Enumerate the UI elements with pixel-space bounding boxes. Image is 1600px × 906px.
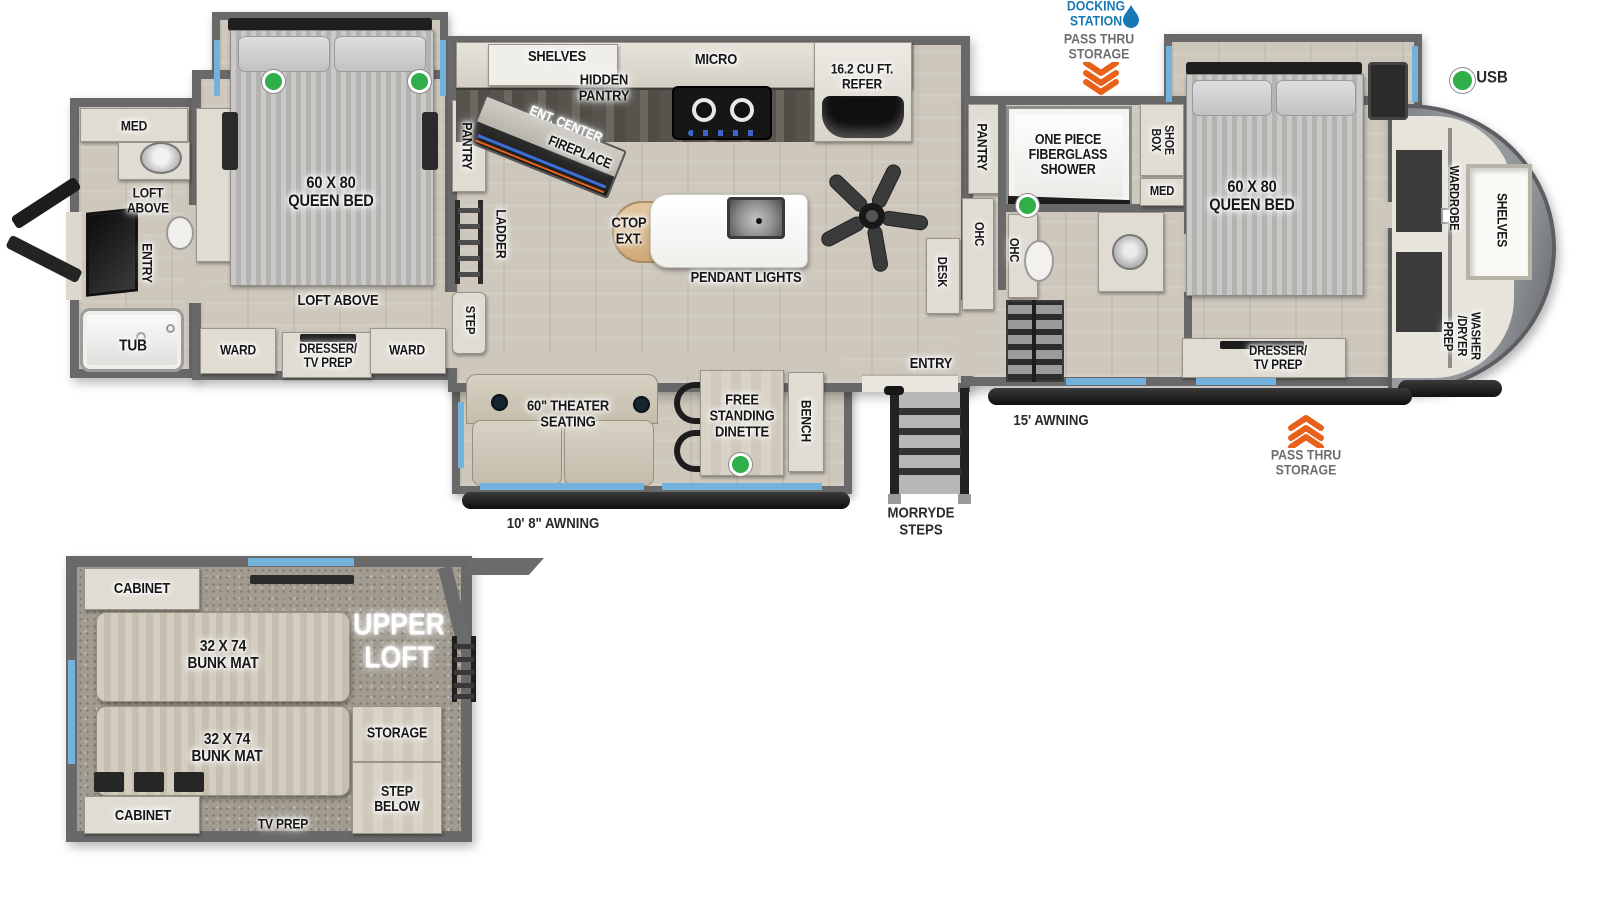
- bedroom2-bed-label: 60 X 80 QUEEN BED: [288, 174, 373, 210]
- stairs-divider: [1032, 300, 1036, 382]
- morryde-steps-label: MORRYDE STEPS: [888, 506, 955, 539]
- kitchen-shelves-label: SHELVES: [528, 49, 586, 65]
- bedroom1-bed-label: 60 X 80 QUEEN BED: [1209, 178, 1294, 214]
- bedroom2-ward-right-label: WARD: [389, 343, 425, 358]
- burner: [730, 98, 754, 122]
- upper-loft-title: UPPER LOFT: [353, 608, 445, 673]
- galley-ladder: [452, 198, 486, 286]
- bedroom1-window-frame: [1368, 62, 1408, 120]
- usb-indicator: [1016, 194, 1039, 217]
- stove-knobs: [688, 130, 760, 136]
- bedroom1-pillow: [1276, 80, 1356, 116]
- desk-label: DESK: [935, 257, 949, 287]
- island-sink: [727, 197, 785, 239]
- living-window: [480, 483, 644, 490]
- awning-small-label: 10' 8" AWNING: [507, 516, 600, 533]
- bedroom2-pillow: [334, 36, 426, 72]
- slideout-opening-living: [464, 352, 842, 374]
- loft-tv-mount: [250, 575, 354, 584]
- cup-holder: [633, 396, 650, 413]
- tub-drain: [166, 324, 175, 333]
- dinette-label: FREE STANDING DINETTE: [709, 392, 774, 439]
- morryde-steps: [884, 386, 974, 506]
- bedroom2-dresser-label: DRESSER/ TV PREP: [299, 342, 357, 370]
- usb-indicator: [408, 70, 431, 93]
- bedroom2-nightstand-window: [222, 112, 238, 170]
- burner: [692, 98, 716, 122]
- wardrobe-opening: [1396, 150, 1442, 232]
- wardrobe-opening: [1396, 252, 1442, 332]
- living-window: [662, 483, 822, 490]
- mid-pantry-label: PANTRY: [975, 123, 990, 170]
- shower-label: ONE PIECE FIBERGLASS SHOWER: [1029, 133, 1108, 179]
- bedroom2-window: [440, 40, 446, 96]
- mid-ohc-cabinet: [962, 198, 994, 310]
- pass-thru-down-arrow-icon: [1081, 62, 1121, 96]
- loft-storage-label: STORAGE: [367, 726, 427, 741]
- living-window: [458, 402, 464, 468]
- bedroom1-window: [1066, 378, 1146, 385]
- loft-cabinet-top-label: CABINET: [114, 581, 170, 597]
- bedroom1-window: [1166, 46, 1172, 102]
- loft-vent-slot: [134, 772, 164, 792]
- toilet: [1024, 240, 1054, 282]
- usb-indicator-legend: [1450, 68, 1475, 93]
- bedroom1-window: [1196, 378, 1276, 385]
- awning-large-label: 15' AWNING: [1013, 413, 1088, 430]
- bath-sink: [1112, 234, 1148, 270]
- usb-label: USB: [1476, 69, 1508, 88]
- awning-roller-small: [462, 492, 850, 509]
- loft-ladder-icon: [450, 636, 478, 702]
- galley-step-label: STEP: [463, 306, 477, 335]
- bedroom2-ward-left-label: WARD: [220, 343, 256, 358]
- loft-step-below-label: STEP BELOW: [374, 785, 420, 815]
- ohc-right-label: OHC: [1007, 238, 1021, 262]
- usb-indicator: [729, 453, 752, 476]
- tub-label: TUB: [119, 339, 147, 356]
- pass-thru-top-label: PASS THRU STORAGE: [1064, 32, 1134, 63]
- loft-window: [248, 558, 354, 566]
- refrigerator: [822, 96, 904, 138]
- entry-label: ENTRY: [910, 356, 952, 372]
- bedroom2-nightstand-window: [422, 112, 438, 170]
- loft-window: [68, 660, 75, 764]
- bedroom2-loft-above-label: LOFT ABOVE: [298, 293, 379, 309]
- stove: [672, 86, 772, 140]
- bedroom2-window: [214, 40, 220, 96]
- rear-entry-label: ENTRY: [140, 243, 155, 283]
- hitch-bar: [1398, 380, 1502, 397]
- docking-station-label: DOCKING STATION: [1067, 0, 1125, 29]
- galley-pantry-label: PANTRY: [460, 122, 475, 169]
- loft-bunk-top-label: 32 X 74 BUNK MAT: [188, 639, 259, 673]
- rear-entry-door-gap: [66, 212, 82, 300]
- bench-label: BENCH: [799, 400, 814, 442]
- loft-cabinet-bottom-label: CABINET: [115, 808, 171, 824]
- loft-vent-slot: [174, 772, 204, 792]
- bedroom1-window: [1412, 46, 1418, 102]
- washer-dryer-label: WASHER /DRYER PREP: [1442, 312, 1483, 360]
- pass-thru-bottom-label: PASS THRU STORAGE: [1271, 448, 1341, 479]
- micro-label: MICRO: [695, 52, 737, 68]
- rear-toilet: [166, 216, 194, 250]
- loft-tv-prep-label: TV PREP: [258, 817, 308, 832]
- loft-roof-flange: [468, 558, 544, 575]
- rear-med-label: MED: [121, 119, 147, 134]
- shoe-box-label: SHOE BOX: [1149, 125, 1175, 155]
- rear-loft-above-label: LOFT ABOVE: [127, 185, 169, 214]
- hidden-pantry-label: HIDDEN PANTRY: [579, 72, 630, 104]
- usb-indicator: [262, 70, 285, 93]
- bath-wall: [998, 104, 1006, 290]
- faucet: [756, 218, 762, 224]
- loft-vent-slot: [94, 772, 124, 792]
- rear-sink: [140, 142, 182, 174]
- pendant-lights-label: PENDANT LIGHTS: [691, 270, 802, 286]
- awning-roller-large: [988, 388, 1412, 405]
- ohc-left-label: OHC: [972, 222, 986, 246]
- theater-seating-label: 60" THEATER SEATING: [527, 398, 609, 430]
- rear-entry-door-open: [86, 207, 138, 296]
- bedroom1-dresser-label: DRESSER/ TV PREP: [1249, 344, 1307, 372]
- bedroom2-pillow: [238, 36, 330, 72]
- loft-bunk-bottom-label: 32 X 74 BUNK MAT: [192, 732, 263, 766]
- bedroom1-pillow: [1192, 80, 1272, 116]
- galley-ladder-label: LADDER: [494, 209, 509, 258]
- pass-thru-up-arrow-icon: [1286, 414, 1326, 448]
- cup-holder: [491, 394, 508, 411]
- floorplan-canvas: MED LOFT ABOVE ENTRY TUB 60 X 80 QUEEN B…: [0, 0, 1600, 906]
- mid-med-label: MED: [1150, 184, 1174, 198]
- closet-shelves-label: SHELVES: [1495, 193, 1510, 247]
- refer-label: 16.2 CU FT. REFER: [831, 61, 893, 90]
- ceiling-fan-icon: [812, 156, 932, 276]
- wardrobe-label: WARDROBE: [1447, 165, 1461, 230]
- ctop-ext-label: CTOP EXT.: [612, 215, 647, 247]
